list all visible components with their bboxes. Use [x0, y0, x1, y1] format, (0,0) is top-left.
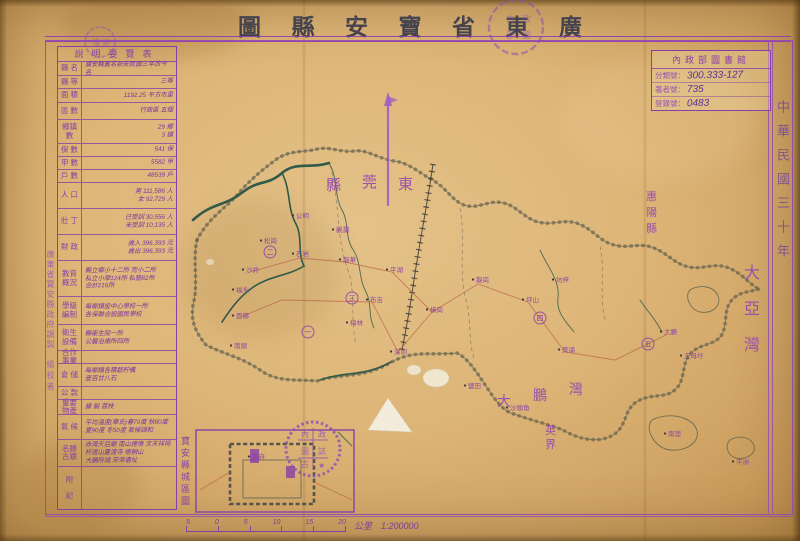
map-label: 坑梓 — [556, 275, 570, 284]
map-label: 深圳 — [394, 347, 407, 356]
map-label: 四 — [537, 315, 544, 323]
map-label: 亞 — [744, 301, 760, 318]
header-stamp: 檔案 — [85, 27, 115, 57]
village-dot — [390, 350, 392, 352]
map-label: 縣 — [646, 222, 657, 235]
scale-tick-label: 10 — [273, 519, 281, 526]
scale-ratio-text: 公里 1:200000 — [354, 519, 419, 532]
title-stamp: 內政部圖 — [489, 0, 543, 54]
map-label: 觀瀾 — [336, 225, 350, 234]
map-label: 大鵬 — [664, 327, 678, 336]
scale-tick-label: 0 — [215, 519, 219, 526]
map-label: 部 — [506, 29, 515, 40]
map-label: 東 — [398, 176, 413, 193]
rivers — [193, 163, 662, 380]
village-dot — [292, 214, 294, 216]
map-label: ★ — [318, 461, 325, 470]
map-label: 公明 — [296, 212, 310, 220]
village-dot — [522, 298, 524, 300]
map-label: 西鄉 — [236, 311, 250, 320]
map-label: 石岩 — [296, 249, 310, 258]
scale-tick-numbers: 505101520 — [186, 519, 346, 526]
map-label: 內 — [301, 430, 309, 439]
map-label: 橫崗 — [430, 305, 443, 314]
scale-segment — [250, 526, 282, 531]
village-dot — [339, 258, 341, 260]
map-label: 平湖 — [390, 265, 404, 274]
map-label: 梅林 — [350, 318, 364, 327]
map-label: 龍崗 — [476, 275, 489, 284]
map-label: 鹽田 — [468, 381, 481, 390]
scale-segment — [186, 526, 218, 531]
map-label: 縣 — [326, 177, 341, 194]
map-label: 葵涌 — [562, 345, 575, 354]
map-label: 英 — [545, 423, 556, 437]
scale-segment — [313, 526, 346, 531]
scale-tick-label: 20 — [338, 519, 346, 526]
map-label: 惠 — [646, 189, 657, 203]
map-label: 坪山 — [526, 295, 539, 304]
village-dot — [332, 228, 334, 230]
map-label: 布吉 — [370, 295, 384, 304]
village-dot — [660, 330, 662, 332]
village-dot — [664, 432, 666, 434]
map-label: 政 — [522, 13, 531, 24]
map-label: 內 — [506, 14, 515, 24]
village-dot — [292, 252, 294, 254]
village-dot — [366, 298, 368, 300]
village-dot — [232, 288, 234, 290]
map-label: 界 — [545, 438, 556, 451]
village-dot — [558, 348, 560, 350]
district-boundaries — [330, 165, 606, 358]
map-label: 鵬 — [533, 387, 547, 403]
village-dot — [248, 455, 250, 457]
map-label: 王母圩 — [684, 352, 704, 360]
map-label: 檔 — [92, 37, 100, 47]
scale-segment — [218, 526, 250, 531]
roads — [238, 258, 668, 360]
map-label: 莞 — [362, 174, 377, 191]
map-label: 福永 — [236, 285, 250, 294]
village-dot — [506, 406, 508, 408]
map-label: 大 — [497, 393, 511, 409]
scale-segment — [281, 526, 313, 531]
map-label: 沙井 — [246, 265, 260, 274]
map-label: 二 — [267, 250, 274, 257]
north-arrow — [384, 92, 398, 206]
map-label: 案 — [102, 37, 110, 47]
map-label: 南頭 — [234, 341, 248, 350]
map-label: 五 — [645, 341, 652, 349]
map-label: 圖 — [522, 30, 531, 40]
map-label: 陽 — [646, 206, 657, 219]
village-dot — [230, 344, 232, 346]
map-label: 松崗 — [264, 236, 277, 245]
map-label: 三 — [349, 295, 356, 303]
village-dot — [260, 239, 262, 241]
scale-tick-label: 15 — [305, 519, 313, 526]
scale-tick-label: 5 — [186, 519, 190, 526]
map-label: 古 — [301, 459, 309, 469]
map-label: 南澳 — [668, 429, 682, 438]
county-map-drawing: 內政部圖 檔案 內政圖誌古★ 縣莞東惠陽縣大亞灣大鵬灣英界公明松崗沙井福永西鄉南… — [0, 0, 800, 541]
village-dot — [680, 354, 682, 356]
village-dot — [732, 460, 734, 462]
map-label: 龍華 — [343, 255, 357, 264]
map-label: 平洲 — [736, 458, 749, 466]
village-dot — [232, 314, 234, 316]
village-dot — [464, 384, 466, 386]
village-dot — [552, 278, 554, 280]
village-dot — [472, 278, 474, 280]
district-number-marks: 一二三四五 — [264, 246, 654, 350]
map-label: 政 — [318, 429, 326, 439]
map-label: 灣 — [744, 336, 760, 354]
map-label: 縣府 — [252, 452, 266, 461]
scale-bar-line — [186, 526, 346, 532]
map-label: 誌 — [318, 446, 326, 456]
scanned-map-sheet: { "title": { "reading": "廣東省寶安縣圖", "disp… — [0, 0, 800, 541]
village-dot — [346, 321, 348, 323]
map-label: 圖 — [301, 447, 309, 456]
village-dot — [242, 268, 244, 270]
inset-city-map — [196, 430, 354, 512]
map-label: 一 — [305, 330, 312, 337]
map-label: 沙頭角 — [510, 403, 530, 412]
scale-bar: 505101520 公里 1:200000 — [186, 519, 419, 532]
county-boundary — [192, 148, 759, 440]
village-dot — [426, 308, 428, 310]
map-label: 大 — [744, 264, 760, 282]
scale-tick-label: 5 — [244, 519, 248, 526]
map-label: 灣 — [569, 381, 583, 397]
village-dot — [386, 268, 388, 270]
